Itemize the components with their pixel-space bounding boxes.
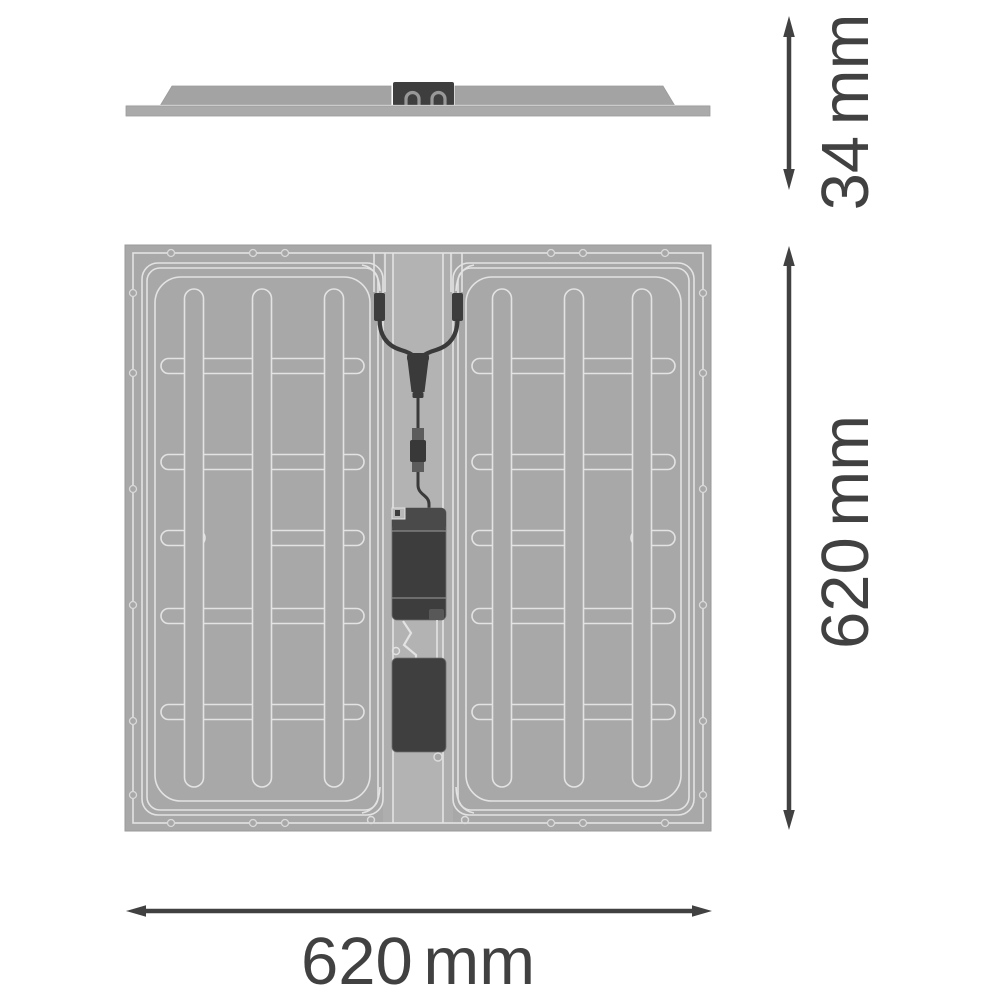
driver-box-2 <box>392 658 446 761</box>
back-pan-left <box>160 86 391 106</box>
screw-mark <box>130 718 137 725</box>
screw-mark <box>130 370 137 377</box>
screw-mark <box>662 820 669 827</box>
arrowhead-left-icon <box>126 905 146 917</box>
screw-mark <box>130 486 137 493</box>
screw-mark <box>700 290 707 297</box>
screw-mark <box>700 486 707 493</box>
screw-mark <box>700 602 707 609</box>
arrowhead-right-icon <box>692 905 712 917</box>
back-pan-right <box>455 86 675 106</box>
driver-box-1 <box>392 508 446 620</box>
dimension-label-620mm-horizontal: 620 mm <box>301 924 535 999</box>
screw-mark <box>282 250 289 257</box>
plug-tip <box>413 392 424 398</box>
driver-box-2-hole <box>434 753 442 761</box>
rib-vertical <box>565 289 584 787</box>
screw-mark <box>548 820 555 827</box>
screw-mark <box>130 290 137 297</box>
inline-connector-bottom <box>412 462 424 472</box>
arrowhead-down-icon <box>783 169 795 190</box>
dimension-34mm: 34 mm <box>783 14 883 211</box>
driver-box-tab <box>429 609 444 620</box>
rib-vertical <box>185 289 204 787</box>
rib-vertical <box>493 289 512 787</box>
dimension-620mm-vertical: 620 mm <box>783 246 883 830</box>
terminal-notch-pin <box>395 510 400 516</box>
driver-box-2-body <box>392 658 446 752</box>
screw-mark <box>168 250 175 257</box>
screw-mark <box>662 250 669 257</box>
dimension-drawing: 34 mm <box>0 0 1000 1000</box>
screw-mark <box>168 820 175 827</box>
screw-mark <box>580 820 587 827</box>
drawing-canvas: 34 mm <box>0 0 1000 1000</box>
arrowhead-up-icon <box>783 16 795 37</box>
screw-mark <box>700 370 707 377</box>
rear-view <box>125 245 711 831</box>
screw-mark <box>130 602 137 609</box>
arrowhead-down-icon <box>783 810 795 830</box>
screw-mark <box>282 820 289 827</box>
inline-connector-body <box>410 440 426 462</box>
strain-relief-right <box>452 293 463 321</box>
screw-mark <box>580 250 587 257</box>
screw-mark <box>700 792 707 799</box>
screw-mark <box>250 250 257 257</box>
inline-connector-top <box>412 428 424 440</box>
screw-mark <box>548 250 555 257</box>
strain-relief-left <box>374 293 385 321</box>
dimension-620mm-horizontal: 620 mm <box>126 905 712 999</box>
screw-mark <box>250 820 257 827</box>
rib-vertical <box>633 289 652 787</box>
dimension-label-620mm-vertical: 620 mm <box>808 415 883 649</box>
arrowhead-up-icon <box>783 246 795 266</box>
screw-mark <box>700 718 707 725</box>
rib-vertical <box>325 289 344 787</box>
panel-base-plate <box>126 106 710 116</box>
rib-vertical <box>253 289 272 787</box>
side-view <box>126 82 710 116</box>
screw-mark <box>130 792 137 799</box>
dimension-label-34mm: 34 mm <box>808 14 883 211</box>
